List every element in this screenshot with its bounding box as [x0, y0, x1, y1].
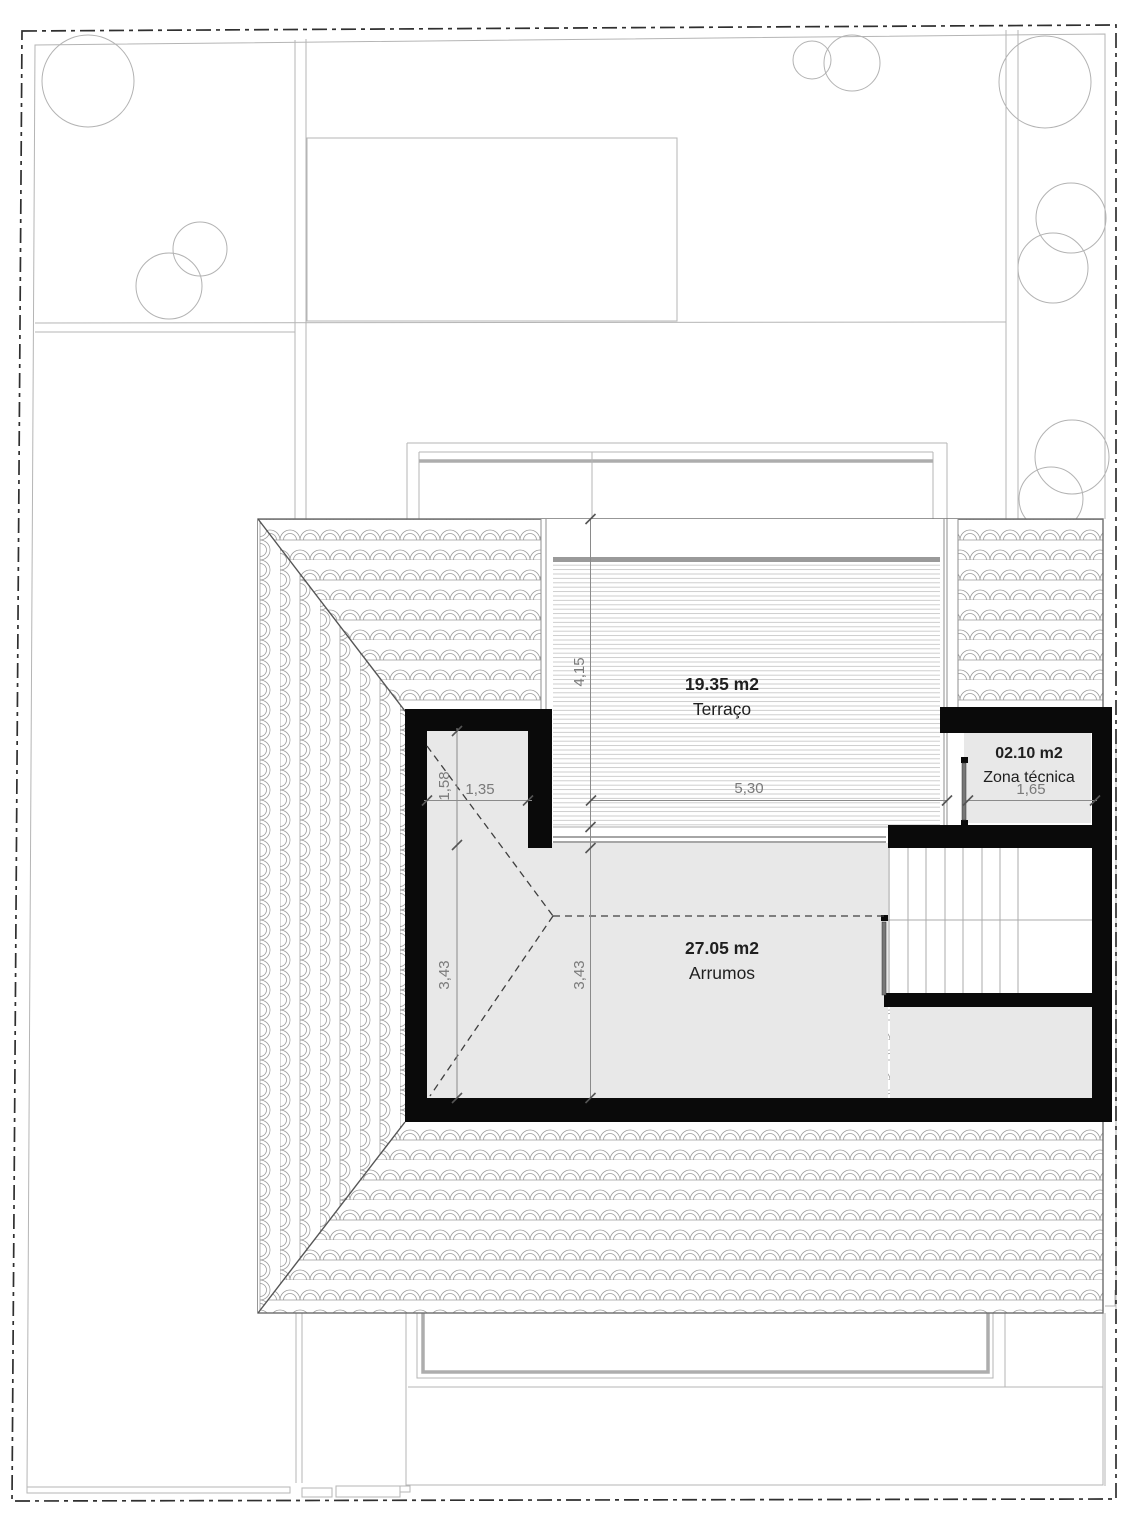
arrumos-area-label: 27.05 m2 [685, 938, 759, 958]
tree-icon [42, 35, 134, 127]
tree-icon [173, 222, 227, 276]
room-arrumos [427, 843, 888, 1098]
door-arrumos [882, 922, 886, 995]
dim-terraco-width: 5,30 [734, 780, 763, 797]
terraco-name-label: Terraço [693, 699, 751, 719]
tree-circles [42, 35, 1109, 531]
terraco-area-label: 19.35 m2 [685, 674, 759, 694]
room-arrumos-right [890, 1007, 1092, 1098]
zona-tecnica-name-label: Zona técnica [983, 769, 1075, 786]
dim-terraco-depth: 4,15 [571, 657, 588, 686]
zona-tecnica-area-label: 02.10 m2 [995, 745, 1063, 762]
tree-icon [136, 253, 202, 319]
dim-closet-width: 1,35 [465, 781, 494, 798]
wall [1092, 733, 1112, 1122]
tree-icon [824, 35, 880, 91]
floor-plan-canvas: 4,15 5,30 1,65 1,35 1,58 3,43 3,43 19.35… [0, 0, 1125, 1526]
wall [405, 1098, 1112, 1122]
tree-icon [793, 41, 831, 79]
dim-arrumos-depth-mid: 3,43 [571, 960, 588, 989]
wall [884, 993, 1093, 1007]
wall [940, 707, 1112, 733]
dim-arrumos-depth-left: 3,43 [436, 960, 453, 989]
tree-icon [999, 36, 1091, 128]
door-zona-tecnica [962, 763, 966, 820]
tree-icon [1035, 420, 1109, 494]
wall [888, 825, 1112, 848]
arrumos-name-label: Arrumos [689, 963, 755, 983]
wall [528, 731, 552, 848]
tree-icon [1018, 233, 1088, 303]
dim-closet-depth: 1,58 [436, 771, 453, 800]
wall [405, 709, 427, 1122]
wall [405, 709, 552, 731]
floor-plan-svg: 4,15 5,30 1,65 1,35 1,58 3,43 3,43 19.35… [0, 0, 1125, 1526]
tree-icon [1036, 183, 1106, 253]
stairs [888, 848, 1092, 993]
